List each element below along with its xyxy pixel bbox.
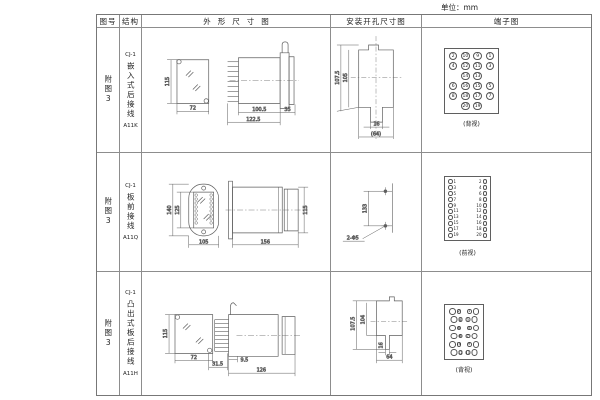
terminal-number: 5 (454, 192, 457, 196)
structure-cell-row3: CJ-1 凸出式板后接线 A11H (120, 272, 142, 395)
mounting-drawing-row1: 107.5 105 16 (64) (331, 28, 421, 152)
terminal-circle (486, 72, 495, 81)
terminal-row: 56 (448, 191, 487, 196)
outline-cell-row1: 115 72 (142, 28, 331, 153)
header-outline-dims: 外形尺寸图 (142, 15, 331, 28)
terminal-number-circle: 4 (449, 62, 458, 71)
terminal-circle (448, 209, 453, 214)
terminal-number-circle: 6 (457, 326, 462, 331)
terminal-number: 19 (454, 233, 459, 237)
terminal-number: 10 (476, 204, 481, 208)
terminal-pair: 9 (467, 341, 479, 348)
terminal-number-circle: 12 (458, 350, 463, 355)
structure-cell-row1: CJ-1 嵌入式后接线 A11K (120, 28, 142, 153)
terminal-number-circle: 2 (457, 309, 462, 314)
terminal-circle (448, 191, 453, 196)
terminal-circle (486, 102, 495, 111)
dim-label: 115 (163, 329, 169, 338)
terminal-circle (471, 316, 478, 323)
terminal-number-circle: 11 (473, 62, 482, 71)
terminal-number: 8 (479, 198, 482, 202)
terminal-caption-row1: (背视) (444, 119, 499, 128)
terminal-circle (448, 221, 453, 226)
terminal-number-circle: 3 (486, 62, 495, 71)
terminal-pair: 7 (466, 333, 478, 340)
terminal-number-circle: 3 (466, 317, 471, 322)
fig-no-row2: 附图3 (104, 197, 112, 227)
dim-label: 115 (165, 77, 171, 86)
terminal-number-circle: 5 (486, 82, 495, 91)
outline-drawing-row1: 115 72 (142, 28, 330, 152)
structure-desc-row2: 板前接线 (127, 193, 135, 231)
mounting-drawing-row2: 133 2-Φ5 (331, 153, 421, 271)
terminal-circle (448, 203, 453, 208)
terminal-row: 1920 (448, 233, 487, 238)
terminal-circle (483, 227, 488, 232)
terminal-circle (473, 308, 480, 315)
dim-label: 126 (257, 368, 266, 374)
terminal-number-circle: 17 (473, 92, 482, 101)
terminal-number-circle: 8 (449, 92, 458, 101)
terminal-circle (473, 341, 480, 348)
code-row1: A11K (123, 123, 137, 129)
terminal-number-circle: 8 (458, 334, 463, 339)
terminal-number: 3 (454, 186, 457, 190)
outline-cell-row3: 115 72 (142, 272, 331, 395)
terminal-number-circle: 18 (461, 92, 470, 101)
dim-label: 107.5 (351, 317, 357, 331)
terminal-row: 34 (448, 185, 487, 190)
terminal-column: 1357911 (467, 308, 479, 356)
dim-label: 133 (363, 204, 369, 213)
terminal-pair: 3 (466, 316, 478, 323)
terminal-number-circle: 7 (486, 92, 495, 101)
terminal-number-circle: 6 (449, 82, 458, 91)
outline-drawing-row3: 115 72 (142, 272, 330, 395)
terminal-number-circle: 14 (461, 72, 470, 81)
mounting-cell-row2: 133 2-Φ5 (331, 153, 422, 272)
fig-no-cell-row3: 附图3 (97, 272, 120, 395)
terminal-circle (451, 316, 458, 323)
terminal-number-circle: 20 (461, 102, 470, 111)
dim-label: 100.5 (252, 107, 266, 113)
terminal-number-circle: 9 (467, 342, 472, 347)
terminal-number: 11 (454, 209, 459, 213)
mounting-drawing-row3: 107.5 104 16 64 (331, 272, 421, 395)
dim-label: 72 (190, 105, 196, 111)
terminal-row: 1718 (448, 227, 487, 232)
dim-label: 156 (261, 239, 270, 245)
terminal-number: 6 (479, 192, 482, 196)
code-row3: A11H (123, 371, 138, 377)
terminal-pair: 6 (449, 325, 461, 332)
terminal-circle (448, 233, 453, 238)
terminal-number: 1 (454, 180, 457, 184)
terminal-row: 1112 (448, 209, 487, 214)
terminal-pair: 4 (451, 316, 463, 323)
terminal-cell-row2: 1234567891011121314151617181920 (前视) (422, 153, 591, 272)
terminal-number-circle: 11 (466, 350, 471, 355)
dim-label: 31.5 (212, 362, 223, 368)
terminal-circle (473, 325, 480, 332)
dim-label: 122.5 (246, 117, 260, 123)
terminal-cell-row1: 2109141211314136161558181772019 (背视) (422, 28, 591, 153)
structure-desc-row1: 嵌入式后接线 (127, 62, 135, 119)
terminal-circle (471, 333, 478, 340)
terminal-number: 16 (476, 221, 481, 225)
dim-label: 125 (175, 205, 181, 214)
terminal-circle (451, 349, 458, 356)
terminal-circle (449, 308, 456, 315)
dim-label: 35 (284, 107, 290, 113)
terminal-circle (448, 215, 453, 220)
dim-label: 105 (343, 73, 349, 82)
terminal-number-circle: 19 (473, 102, 482, 111)
fig-no-cell-row2: 附图3 (97, 153, 120, 272)
terminal-pair: 1 (467, 308, 479, 315)
code-row2: A11Q (123, 235, 138, 241)
header-structure: 结构 (120, 15, 142, 28)
dim-label: 64 (386, 355, 392, 361)
terminal-cell-row3: 246810121357911 (背视) (422, 272, 591, 395)
dim-label: 115 (303, 205, 309, 214)
header-fig-no: 图号 (97, 15, 120, 28)
terminal-number: 15 (454, 221, 459, 225)
fig-no-row3: 附图3 (104, 319, 112, 349)
dim-label: 72 (191, 355, 197, 361)
fig-no-row1: 附图3 (104, 75, 112, 105)
terminal-row: 12 (448, 179, 487, 184)
model-row1: CJ-1 (125, 52, 136, 58)
terminal-circle (483, 209, 488, 214)
terminal-number-circle: 16 (461, 82, 470, 91)
terminal-row: 1516 (448, 221, 487, 226)
dim-label: 16 (373, 122, 379, 128)
terminal-caption-row2: (前视) (444, 248, 491, 257)
terminal-caption-row3: (背视) (436, 365, 492, 374)
terminal-number-circle: 10 (457, 342, 462, 347)
terminal-circle (449, 325, 456, 332)
terminal-number-circle: 1 (486, 52, 495, 61)
terminal-column: 24681012 (449, 308, 461, 356)
terminal-circle (483, 197, 488, 202)
dim-label: 16 (378, 342, 384, 348)
terminal-row: 78 (448, 197, 487, 202)
terminal-number: 2 (479, 180, 482, 184)
terminal-pair: 8 (451, 333, 463, 340)
outline-cell-row2: 140 125 105 156 115 (142, 153, 331, 272)
terminal-circle (483, 221, 488, 226)
terminal-pair: 2 (449, 308, 461, 315)
header-mounting-dims: 安装开孔尺寸图 (331, 15, 422, 28)
dim-label: 140 (167, 205, 173, 214)
dim-label: 105 (199, 239, 208, 245)
spec-table: 图号 结构 外形尺寸图 安装开孔尺寸图 端子图 附图3 CJ-1 嵌入式后接线 … (96, 14, 592, 396)
terminal-row: 910 (448, 203, 487, 208)
dim-label: 2-Φ5 (347, 236, 359, 242)
terminal-circle (448, 179, 453, 184)
header-terminal-diagram: 端子图 (422, 15, 591, 28)
terminal-circle (483, 215, 488, 220)
terminal-circle (483, 185, 488, 190)
dim-label: 104 (361, 315, 367, 324)
terminal-number: 12 (476, 209, 481, 213)
terminal-circle (483, 203, 488, 208)
terminal-number: 7 (454, 198, 457, 202)
structure-desc-row3: 凸出式板后接线 (127, 300, 135, 367)
terminal-number-circle: 2 (449, 52, 458, 61)
terminal-circle (448, 197, 453, 202)
terminal-pair: 11 (466, 349, 478, 356)
terminal-number: 20 (476, 233, 481, 237)
terminal-number-circle: 4 (458, 317, 463, 322)
terminal-pair: 12 (451, 349, 463, 356)
mounting-cell-row3: 107.5 104 16 64 (331, 272, 422, 395)
terminal-number-circle: 13 (473, 72, 482, 81)
terminal-number-circle: 10 (461, 52, 470, 61)
terminal-number: 14 (476, 215, 481, 219)
structure-cell-row2: CJ-1 板前接线 A11Q (120, 153, 142, 272)
terminal-number-circle: 7 (466, 334, 471, 339)
terminal-number-circle: 5 (467, 326, 472, 331)
model-row3: CJ-1 (125, 290, 136, 296)
terminal-number: 4 (479, 186, 482, 190)
terminal-number: 9 (454, 204, 457, 208)
terminal-pair: 10 (449, 341, 461, 348)
terminal-box-row1: 2109141211314136161558181772019 (444, 48, 499, 114)
terminal-number: 17 (454, 227, 459, 231)
terminal-number: 13 (454, 215, 459, 219)
terminal-pair: 5 (467, 325, 479, 332)
outline-drawing-row2: 140 125 105 156 115 (142, 153, 330, 271)
terminal-circle (451, 333, 458, 340)
dim-label: 9.5 (240, 357, 248, 363)
dim-label: (64) (371, 131, 381, 137)
terminal-circle (448, 227, 453, 232)
terminal-number-circle: 12 (461, 62, 470, 71)
terminal-box-row2: 1234567891011121314151617181920 (444, 176, 491, 241)
terminal-circle (448, 185, 453, 190)
terminal-circle (471, 349, 478, 356)
model-row2: CJ-1 (125, 183, 136, 189)
terminal-circle (449, 72, 458, 81)
terminal-circle (483, 233, 488, 238)
terminal-row: 1314 (448, 215, 487, 220)
terminal-number-circle: 1 (467, 309, 472, 314)
terminal-circle (449, 341, 456, 348)
terminal-number-circle: 9 (473, 52, 482, 61)
dim-label: 107.5 (335, 71, 341, 85)
terminal-number: 18 (476, 227, 481, 231)
terminal-number-circle: 15 (473, 82, 482, 91)
terminal-circle (483, 179, 488, 184)
datasheet-page: 单位：mm 图号 结构 外形尺寸图 安装开孔尺寸图 端子图 附图3 CJ-1 嵌… (0, 0, 600, 400)
terminal-circle (483, 191, 488, 196)
terminal-box-row3: 246810121357911 (444, 304, 484, 360)
fig-no-cell-row1: 附图3 (97, 28, 120, 153)
terminal-circle (449, 102, 458, 111)
mounting-cell-row1: 107.5 105 16 (64) (331, 28, 422, 153)
unit-label: 单位：mm (441, 2, 478, 13)
